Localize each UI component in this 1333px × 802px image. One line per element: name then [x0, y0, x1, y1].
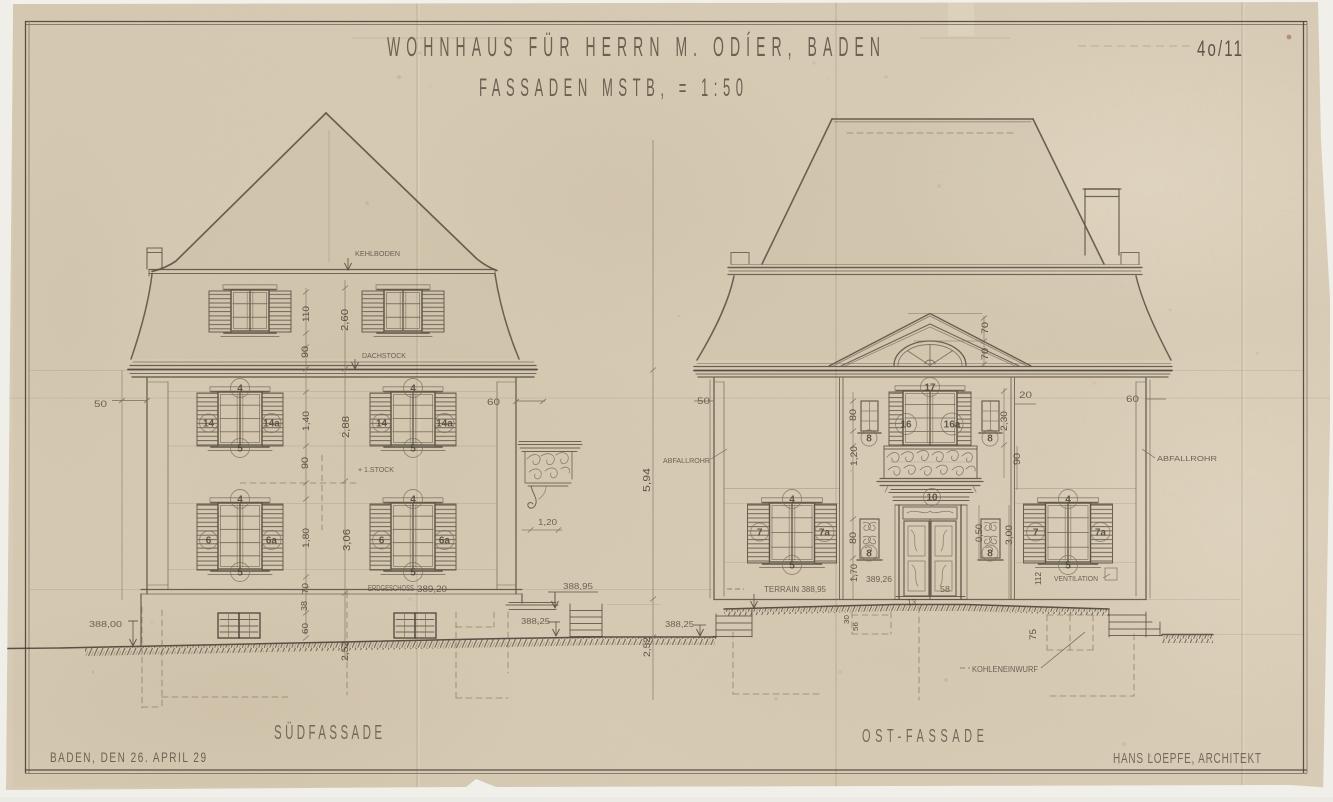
svg-text:4o/11: 4o/11: [1197, 36, 1242, 60]
svg-text:4: 4: [237, 384, 243, 395]
svg-text:14: 14: [376, 419, 388, 430]
svg-text:HANS LOEPFE, ARCHITEKT: HANS LOEPFE, ARCHITEKT: [1113, 749, 1261, 767]
svg-text:6: 6: [379, 536, 385, 547]
svg-text:30: 30: [844, 615, 851, 624]
svg-text:1,20: 1,20: [849, 446, 860, 466]
svg-text:70: 70: [980, 322, 990, 334]
svg-text:8: 8: [866, 549, 872, 560]
svg-text:60: 60: [1126, 394, 1139, 405]
svg-text:3,00: 3,00: [1004, 525, 1015, 545]
svg-text:4: 4: [410, 495, 416, 506]
svg-text:7: 7: [757, 528, 763, 539]
svg-text:7: 7: [1033, 528, 1039, 539]
svg-text:90: 90: [300, 457, 310, 469]
svg-text:7a: 7a: [1095, 528, 1107, 539]
svg-text:6a: 6a: [266, 536, 278, 547]
svg-text:4: 4: [789, 495, 795, 506]
svg-text:110: 110: [301, 306, 311, 322]
svg-text:1,70: 1,70: [849, 564, 860, 582]
svg-text:5: 5: [789, 561, 795, 572]
svg-text:14a: 14a: [263, 419, 280, 430]
svg-text:90: 90: [1012, 453, 1022, 465]
svg-text:2,88: 2,88: [341, 416, 352, 438]
svg-text:+ 1.STOCK: + 1.STOCK: [358, 465, 394, 474]
svg-text:389,26: 389,26: [866, 574, 892, 584]
svg-text:388,25: 388,25: [665, 620, 695, 629]
svg-text:6: 6: [206, 536, 212, 547]
svg-text:2,52: 2,52: [340, 641, 351, 661]
svg-text:50: 50: [94, 399, 107, 410]
svg-text:17: 17: [924, 383, 936, 394]
svg-text:5: 5: [1065, 561, 1071, 572]
svg-text:60: 60: [487, 397, 500, 408]
svg-text:16a: 16a: [944, 420, 961, 431]
svg-text:388,00: 388,00: [89, 619, 122, 629]
svg-text:80: 80: [848, 409, 858, 421]
svg-text:5: 5: [410, 568, 416, 579]
svg-text:2,30: 2,30: [999, 411, 1010, 431]
svg-text:90: 90: [300, 346, 310, 358]
svg-text:13: 13: [907, 598, 917, 607]
svg-text:2,52: 2,52: [642, 637, 653, 657]
svg-text:KOHLENEINWURF: KOHLENEINWURF: [972, 665, 1038, 674]
svg-text:KEHLBODEN: KEHLBODEN: [355, 249, 400, 258]
svg-text:50: 50: [697, 396, 710, 407]
svg-text:389,20: 389,20: [417, 584, 447, 595]
svg-text:BADEN, DEN 26. APRIL 29: BADEN, DEN 26. APRIL 29: [50, 749, 206, 765]
svg-text:20: 20: [1019, 390, 1032, 401]
svg-text:ERDGESCHOSS: ERDGESCHOSS: [368, 584, 414, 593]
svg-text:ABFALLROHR: ABFALLROHR: [663, 456, 711, 465]
svg-text:60: 60: [300, 623, 310, 634]
svg-text:112: 112: [1034, 571, 1043, 585]
svg-text:4: 4: [1065, 495, 1071, 506]
svg-text:2,60: 2,60: [340, 309, 351, 331]
svg-text:10: 10: [926, 493, 938, 504]
svg-text:4: 4: [237, 495, 243, 506]
svg-text:56: 56: [853, 622, 860, 631]
svg-text:1,80: 1,80: [301, 528, 312, 548]
svg-text:8: 8: [987, 549, 993, 560]
svg-text:8: 8: [987, 434, 993, 445]
svg-text:70: 70: [980, 348, 990, 360]
svg-text:58: 58: [940, 585, 951, 594]
svg-text:DACHSTOCK: DACHSTOCK: [362, 351, 406, 360]
svg-text:70: 70: [300, 583, 310, 594]
svg-text:0,50: 0,50: [974, 524, 984, 542]
svg-text:8: 8: [866, 434, 872, 445]
svg-text:ABFALLROHR: ABFALLROHR: [1157, 454, 1218, 463]
svg-text:5: 5: [410, 444, 416, 455]
svg-text:5: 5: [237, 568, 243, 579]
svg-text:VENTILATION: VENTILATION: [1054, 576, 1098, 583]
svg-text:14a: 14a: [436, 419, 453, 430]
svg-text:TERRAIN 388,95: TERRAIN 388,95: [764, 585, 827, 594]
svg-text:7a: 7a: [819, 528, 831, 539]
svg-text:1,40: 1,40: [301, 411, 312, 431]
svg-text:80: 80: [848, 532, 858, 544]
svg-text:14: 14: [203, 419, 215, 430]
svg-text:75: 75: [1028, 629, 1038, 640]
svg-text:6a: 6a: [439, 536, 451, 547]
svg-text:3,06: 3,06: [342, 529, 353, 551]
svg-text:4: 4: [410, 384, 416, 395]
svg-text:16: 16: [900, 420, 912, 431]
svg-text:38: 38: [300, 600, 309, 611]
svg-text:1,20: 1,20: [538, 517, 557, 527]
svg-text:5,94: 5,94: [642, 467, 653, 492]
svg-text:5: 5: [237, 444, 243, 455]
svg-text:OST-FASSADE: OST-FASSADE: [862, 726, 984, 747]
